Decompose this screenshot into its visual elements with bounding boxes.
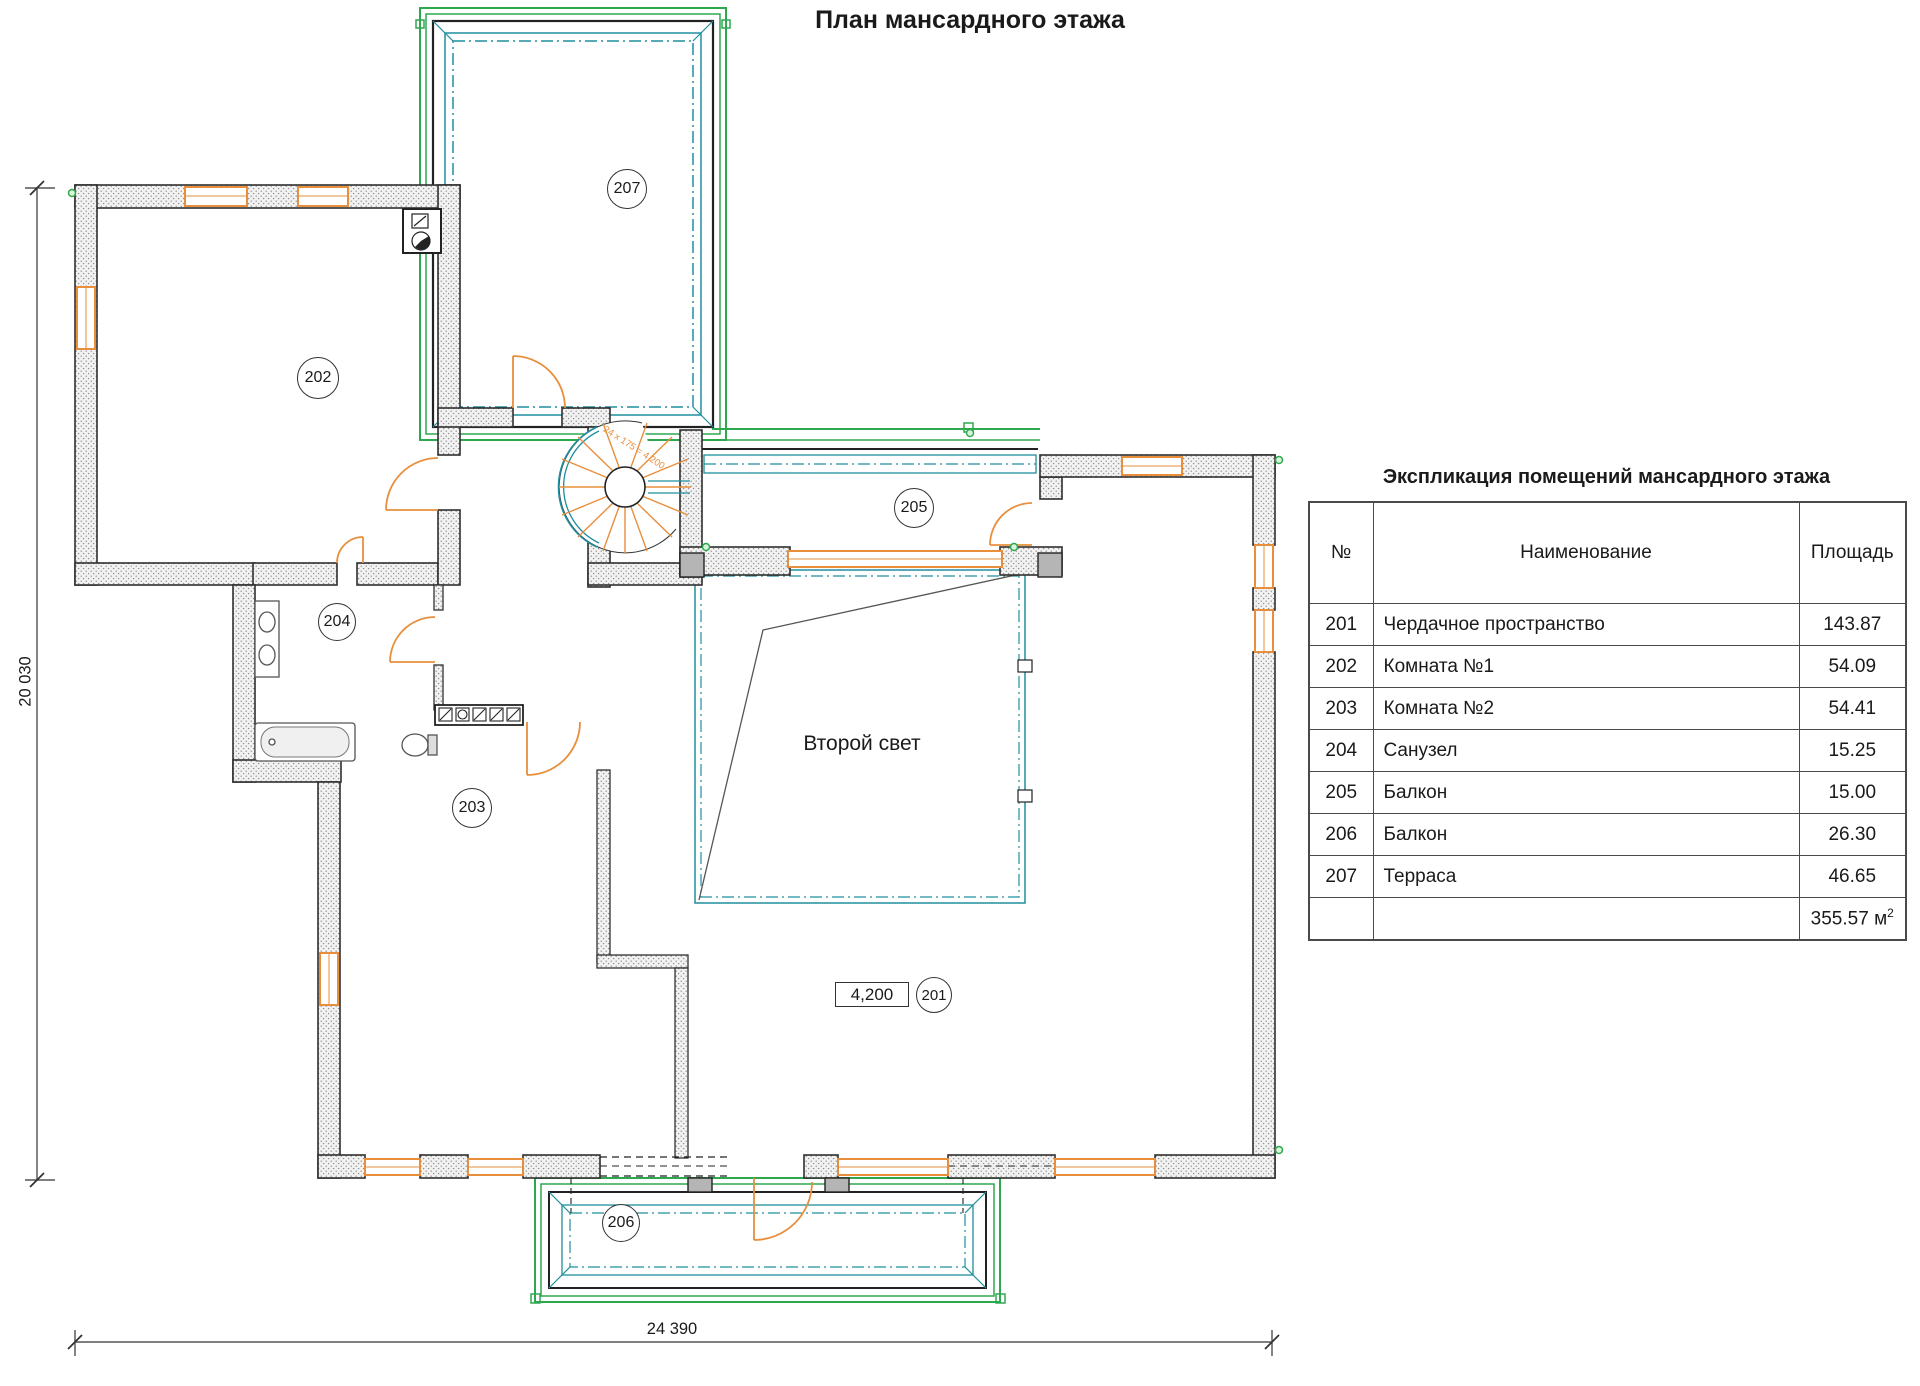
dimension-horizontal: 24 390 bbox=[597, 1320, 747, 1339]
table-row: 207 Терраса 46.65 bbox=[1309, 856, 1906, 898]
balcony-205-outline bbox=[702, 423, 1040, 473]
dimension-vertical: 20 030 bbox=[17, 640, 36, 724]
drawing-sheet: План мансардного этажа 207 202 204 203 2… bbox=[0, 0, 1920, 1386]
table-header-row: № Наименование Площадь bbox=[1309, 502, 1906, 604]
wall-posts bbox=[680, 553, 1062, 1192]
dimension-lines bbox=[25, 181, 1279, 1356]
balcony-206-outline bbox=[531, 1158, 1005, 1303]
table-row: 206 Балкон 26.30 bbox=[1309, 814, 1906, 856]
table-total-row: 355.57 м2 bbox=[1309, 898, 1906, 941]
page-title: План мансардного этажа bbox=[760, 6, 1180, 35]
room-bubble-203: 203 bbox=[452, 788, 492, 828]
col-header-num: № bbox=[1309, 502, 1373, 604]
explication-table: № Наименование Площадь 201 Чердачное про… bbox=[1308, 501, 1907, 941]
table-row: 204 Санузел 15.25 bbox=[1309, 730, 1906, 772]
room-bubble-205: 205 bbox=[894, 488, 934, 528]
vent-shaft bbox=[435, 705, 523, 725]
room-bubble-202: 202 bbox=[297, 357, 339, 399]
table-row: 205 Балкон 15.00 bbox=[1309, 772, 1906, 814]
elevation-mark: 4,200 bbox=[835, 982, 909, 1007]
col-header-name: Наименование bbox=[1373, 502, 1799, 604]
room-bubble-201: 201 bbox=[916, 977, 952, 1013]
total-area: 355.57 м2 bbox=[1799, 898, 1906, 941]
table-row: 201 Чердачное пространство 143.87 bbox=[1309, 604, 1906, 646]
table-row: 203 Комната №2 54.41 bbox=[1309, 688, 1906, 730]
terrace-outline bbox=[416, 8, 730, 440]
walls bbox=[75, 185, 1275, 1178]
room-bubble-207: 207 bbox=[607, 169, 647, 209]
flue-block bbox=[403, 209, 441, 253]
room-bubble-204: 204 bbox=[318, 603, 356, 641]
explication-title: Экспликация помещений мансардного этажа bbox=[1308, 466, 1905, 489]
toilet bbox=[402, 734, 428, 756]
second-light-label: Второй свет bbox=[772, 732, 952, 756]
room-bubble-206: 206 bbox=[602, 1204, 640, 1242]
col-header-area: Площадь bbox=[1799, 502, 1906, 604]
table-row: 202 Комната №1 54.09 bbox=[1309, 646, 1906, 688]
explication-panel: Экспликация помещений мансардного этажа … bbox=[1308, 466, 1905, 941]
